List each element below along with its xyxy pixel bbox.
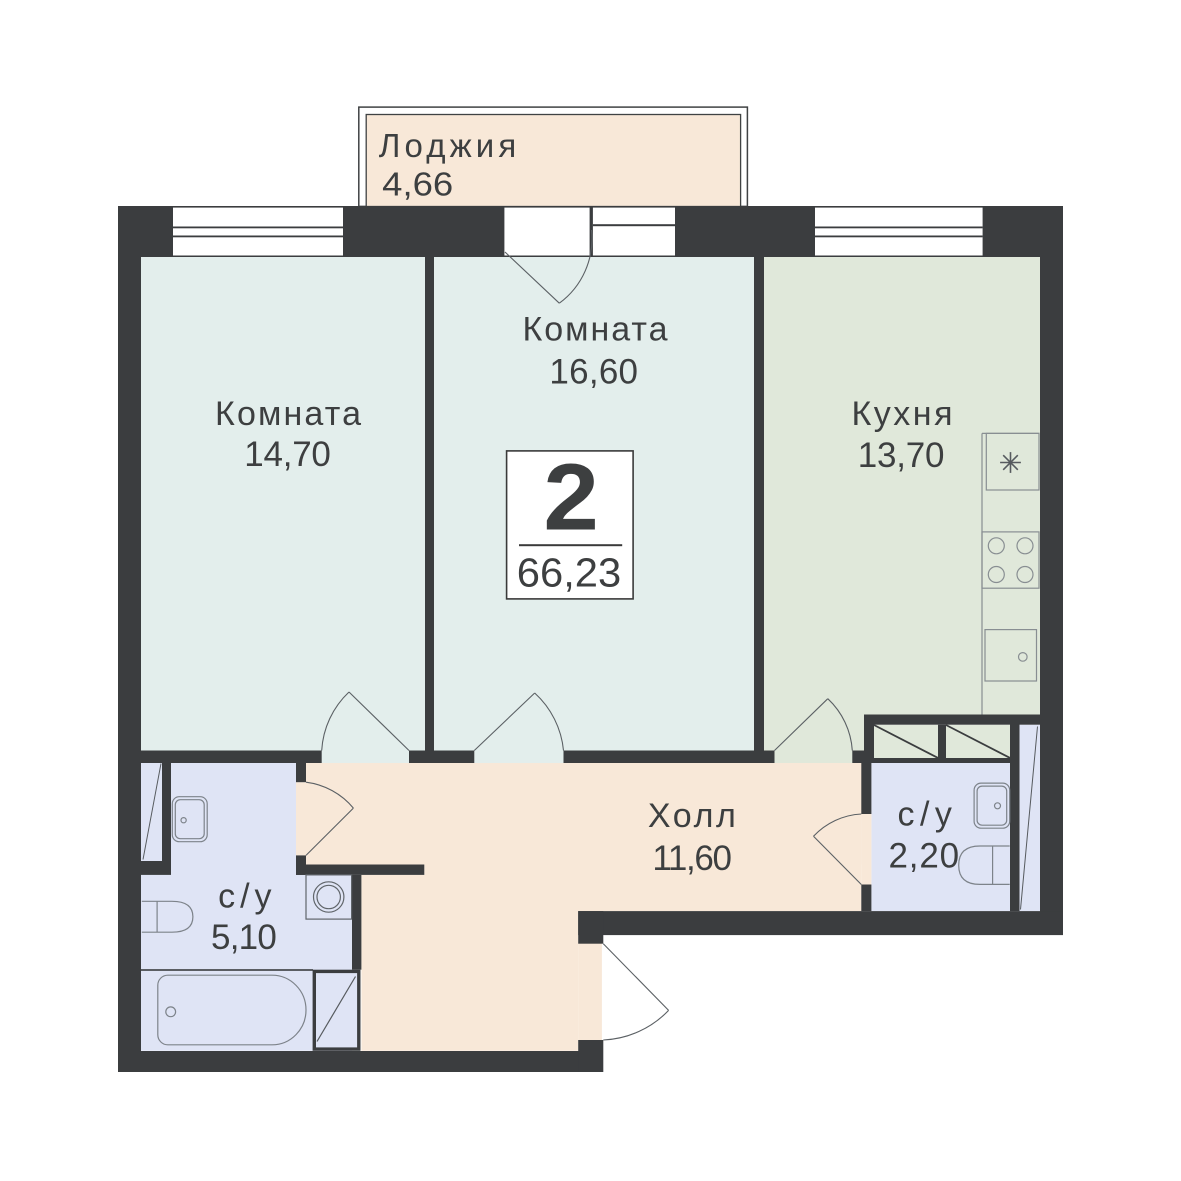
svg-text:Кухня: Кухня — [852, 395, 953, 433]
svg-text:2: 2 — [543, 445, 599, 551]
svg-text:Комната: Комната — [215, 395, 361, 433]
svg-text:с/у: с/у — [898, 796, 952, 834]
svg-text:13,70: 13,70 — [858, 436, 945, 475]
svg-text:14,70: 14,70 — [244, 435, 331, 474]
svg-text:2,20: 2,20 — [889, 837, 960, 876]
svg-text:Комната: Комната — [523, 311, 668, 349]
svg-text:5,10: 5,10 — [211, 918, 277, 957]
svg-text:66,23: 66,23 — [517, 549, 622, 595]
svg-text:с/у: с/у — [218, 877, 271, 915]
svg-text:11,60: 11,60 — [652, 839, 732, 878]
svg-text:16,60: 16,60 — [549, 352, 638, 391]
svg-text:4,66: 4,66 — [382, 166, 453, 203]
